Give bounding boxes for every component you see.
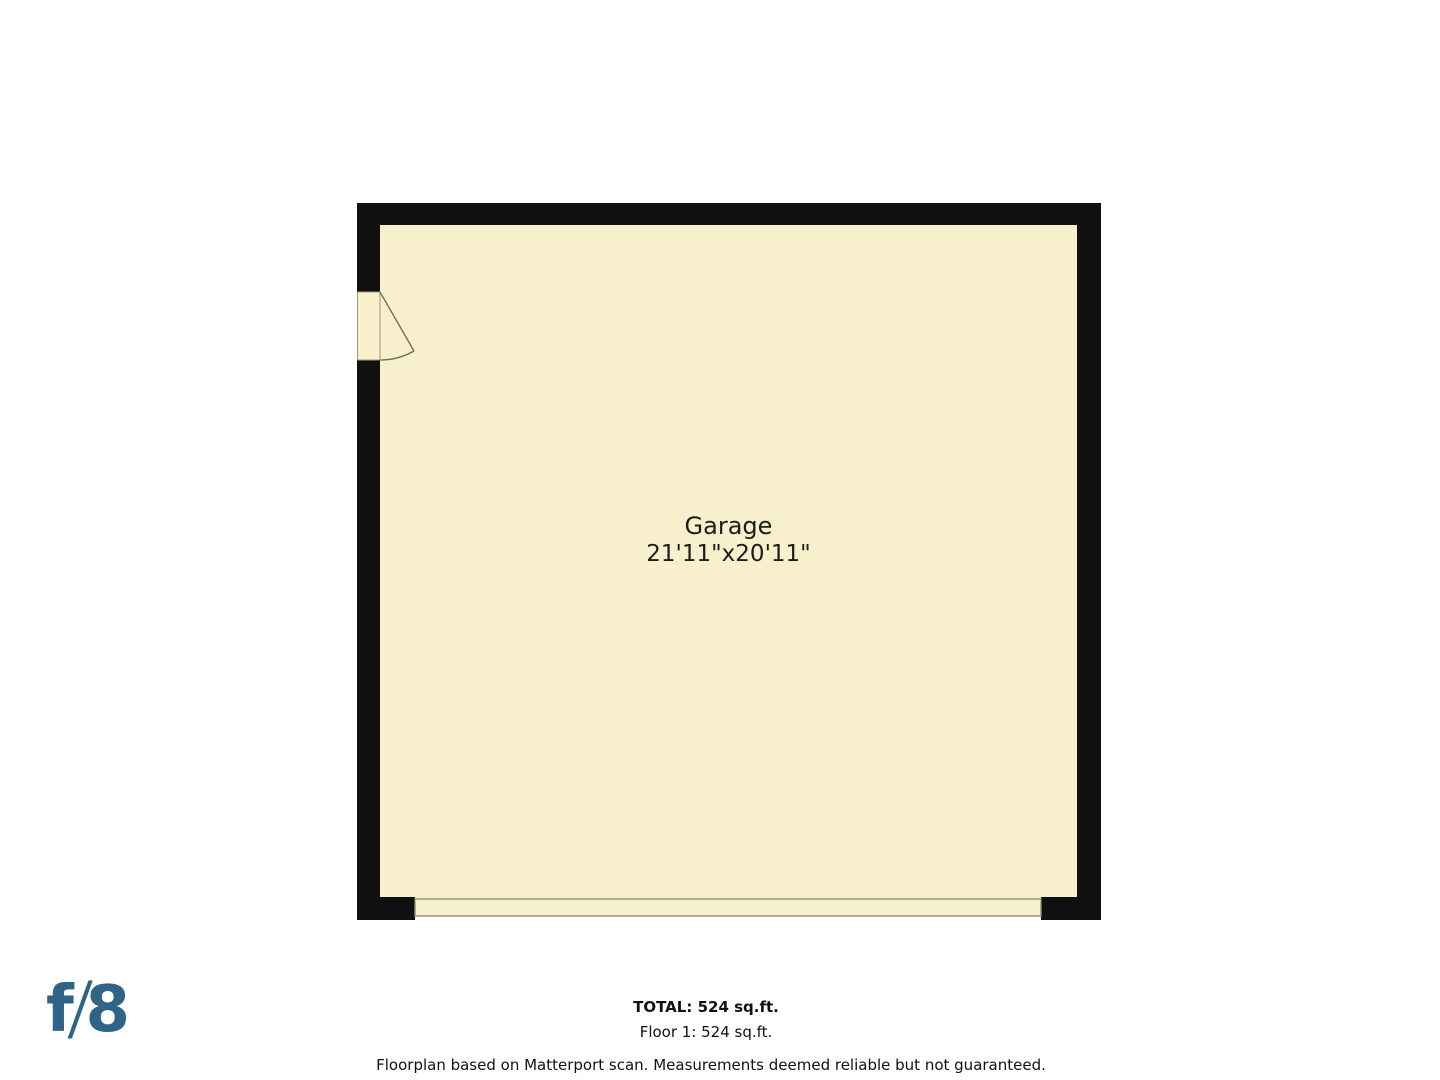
corner-block-bottom-left	[357, 897, 415, 920]
door-opening	[358, 292, 381, 360]
page-root: Garage 21'11"x20'11" TOTAL: 524 sq.ft. F…	[0, 0, 1440, 1080]
room-dimensions: 21'11"x20'11"	[380, 540, 1077, 568]
total-area-text: TOTAL: 524 sq.ft.	[0, 998, 1412, 1016]
wall-top	[357, 203, 1101, 225]
floor1-area-text: Floor 1: 524 sq.ft.	[0, 1023, 1412, 1041]
logo-slash: /	[71, 973, 88, 1043]
logo-letter-f: f	[46, 973, 74, 1047]
garage-door-opening	[415, 899, 1041, 916]
disclaimer-text: Floorplan based on Matterport scan. Meas…	[0, 1056, 1422, 1074]
logo-digit-8: 8	[85, 973, 130, 1047]
room-name: Garage	[380, 512, 1077, 540]
room-label-block: Garage 21'11"x20'11"	[380, 512, 1077, 568]
f8-logo: f/8	[46, 972, 130, 1042]
area-summary: TOTAL: 524 sq.ft. Floor 1: 524 sq.ft.	[0, 998, 1412, 1041]
corner-block-bottom-right	[1041, 897, 1101, 920]
wall-right	[1077, 225, 1101, 920]
